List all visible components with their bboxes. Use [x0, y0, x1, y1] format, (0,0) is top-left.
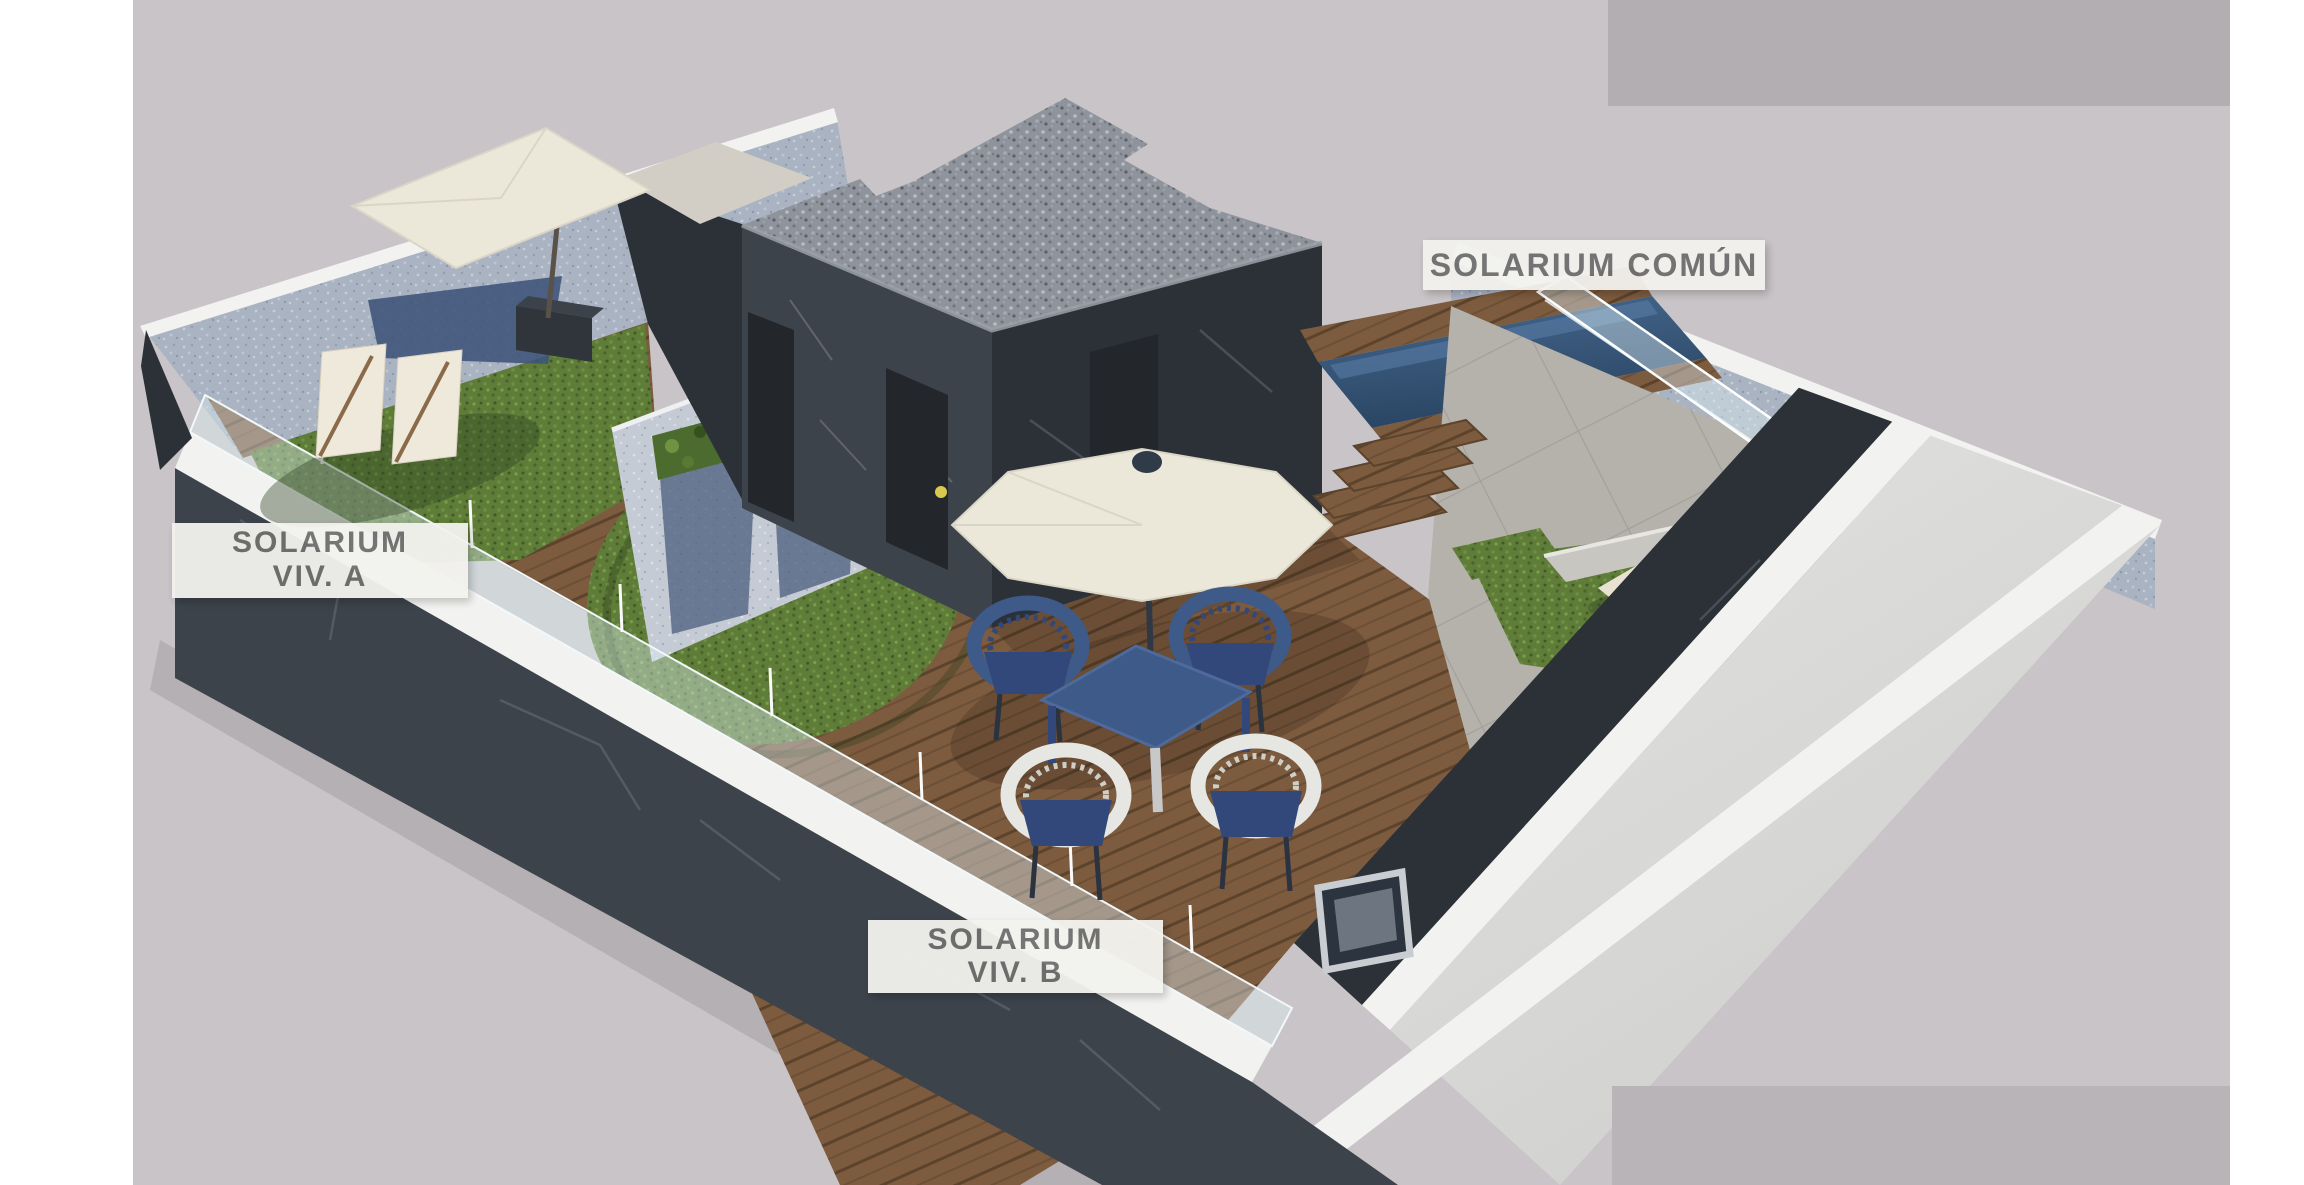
deck-chair-1 — [316, 344, 386, 458]
watermark-block-bottom-right — [1612, 1086, 2230, 1185]
label-solarium-viv-a: SOLARIUM VIV. A — [172, 523, 468, 598]
render-canvas: SOLARIUM COMÚN SOLARIUM VIV. A SOLARIUM … — [0, 0, 2304, 1185]
skylight-hatch — [1318, 872, 1410, 970]
label-viv-a-line2: VIV. A — [172, 560, 468, 594]
label-viv-a-line1: SOLARIUM — [172, 526, 468, 560]
label-viv-b-line2: VIV. B — [868, 956, 1163, 989]
table-leg-front — [1155, 748, 1158, 812]
label-solarium-comun: SOLARIUM COMÚN — [1423, 240, 1765, 290]
label-viv-b-line1: SOLARIUM — [868, 923, 1163, 956]
label-solarium-comun-text: SOLARIUM COMÚN — [1423, 240, 1765, 290]
label-solarium-viv-b: SOLARIUM VIV. B — [868, 920, 1163, 993]
building-door-1 — [748, 312, 794, 522]
building-door-2 — [886, 368, 948, 570]
deck-chair-2 — [392, 350, 462, 464]
watermark-block-top-right — [1608, 0, 2230, 106]
parasol-finial — [1132, 451, 1162, 473]
door-handle — [935, 486, 947, 498]
